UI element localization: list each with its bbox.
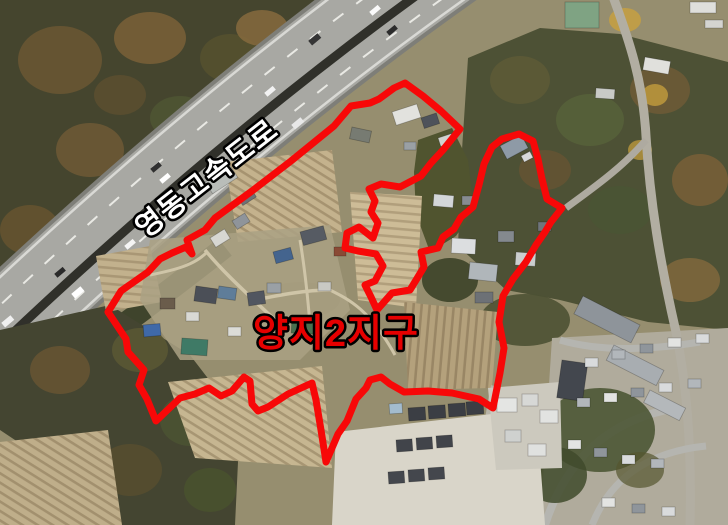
building (217, 286, 236, 300)
house (594, 448, 607, 457)
house (662, 507, 675, 516)
building (186, 312, 199, 321)
house (668, 338, 681, 347)
building (181, 338, 208, 356)
tree-canopy (588, 186, 652, 234)
house (602, 498, 615, 507)
building (448, 403, 466, 417)
building (475, 292, 493, 303)
building (690, 2, 716, 13)
building (595, 88, 615, 99)
building (228, 327, 241, 336)
building (389, 403, 403, 414)
building (396, 439, 413, 452)
building (557, 360, 588, 401)
building (436, 435, 453, 448)
building (497, 398, 517, 412)
house (631, 388, 644, 397)
house (622, 455, 635, 464)
building (416, 437, 433, 450)
building (194, 286, 218, 304)
building (565, 2, 599, 28)
house (659, 383, 672, 392)
building (433, 194, 454, 208)
tree-canopy (30, 346, 90, 394)
house (577, 398, 590, 407)
tree-canopy (672, 154, 728, 206)
tree-canopy (18, 26, 102, 94)
building (428, 467, 445, 480)
house (651, 459, 664, 468)
house (585, 358, 598, 367)
building (408, 407, 426, 421)
building (451, 238, 476, 254)
house (632, 504, 645, 513)
building (468, 262, 498, 282)
building (705, 20, 723, 28)
building (408, 469, 425, 482)
building (528, 444, 546, 456)
district-label: 양지2지구 (253, 313, 419, 355)
aerial-map-screenshot: 영동고속도로 양지2지구 (0, 0, 728, 525)
building (522, 394, 538, 406)
tree-canopy (114, 12, 186, 64)
tree-canopy (94, 75, 146, 115)
building (505, 430, 521, 442)
building (428, 405, 446, 419)
house (696, 334, 709, 343)
building (498, 231, 514, 242)
field-bottom-left (0, 430, 122, 525)
building (267, 283, 281, 293)
house (688, 379, 701, 388)
tree-canopy (556, 94, 624, 146)
building (143, 324, 161, 337)
house (604, 393, 617, 402)
forest-east (458, 8, 728, 330)
building (247, 291, 266, 306)
building (160, 298, 175, 309)
building (388, 471, 405, 484)
aerial-map-canvas: 영동고속도로 양지2지구 (0, 0, 728, 525)
building (318, 282, 331, 291)
house (640, 344, 653, 353)
building (540, 410, 558, 423)
tree-canopy (184, 468, 236, 512)
house (612, 350, 625, 359)
tree-canopy (490, 56, 550, 104)
building (404, 142, 416, 150)
house (568, 440, 581, 449)
